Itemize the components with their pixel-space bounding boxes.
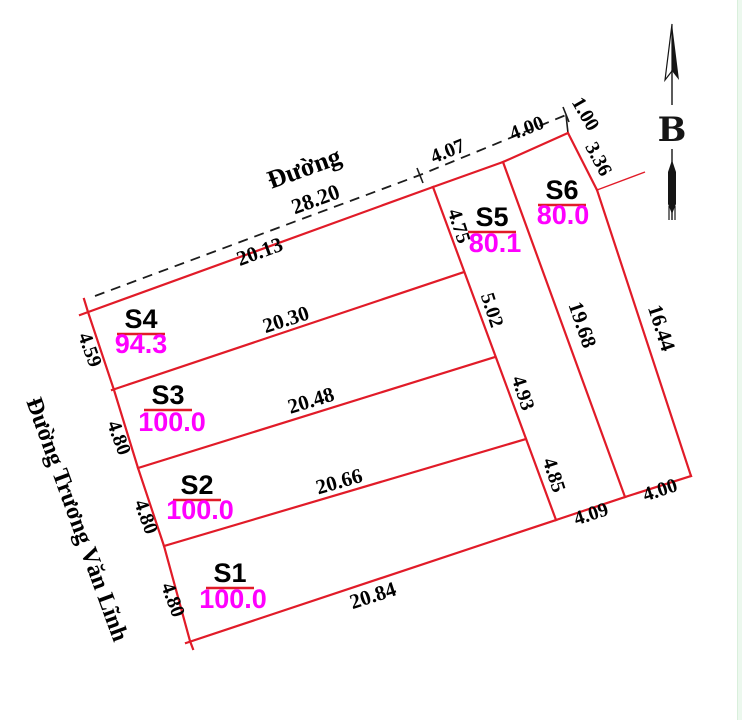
plot-area-s1: 100.0	[199, 584, 267, 614]
plot-area-s3: 100.0	[138, 407, 206, 437]
cadastral-drawing: 28.2020.134.074.001.003.364.755.024.934.…	[0, 0, 742, 720]
cadastral-plat-viewer: 28.2020.134.074.001.003.364.755.024.934.…	[0, 0, 742, 720]
plot-area-s5: 80.1	[469, 228, 522, 258]
plot-area-s2: 100.0	[166, 495, 234, 525]
plot-area-s4: 94.3	[115, 329, 168, 359]
plot-area-s6: 80.0	[537, 200, 590, 230]
plot-label-s3: S3	[151, 380, 184, 410]
north-symbol-letter: B	[658, 110, 687, 150]
